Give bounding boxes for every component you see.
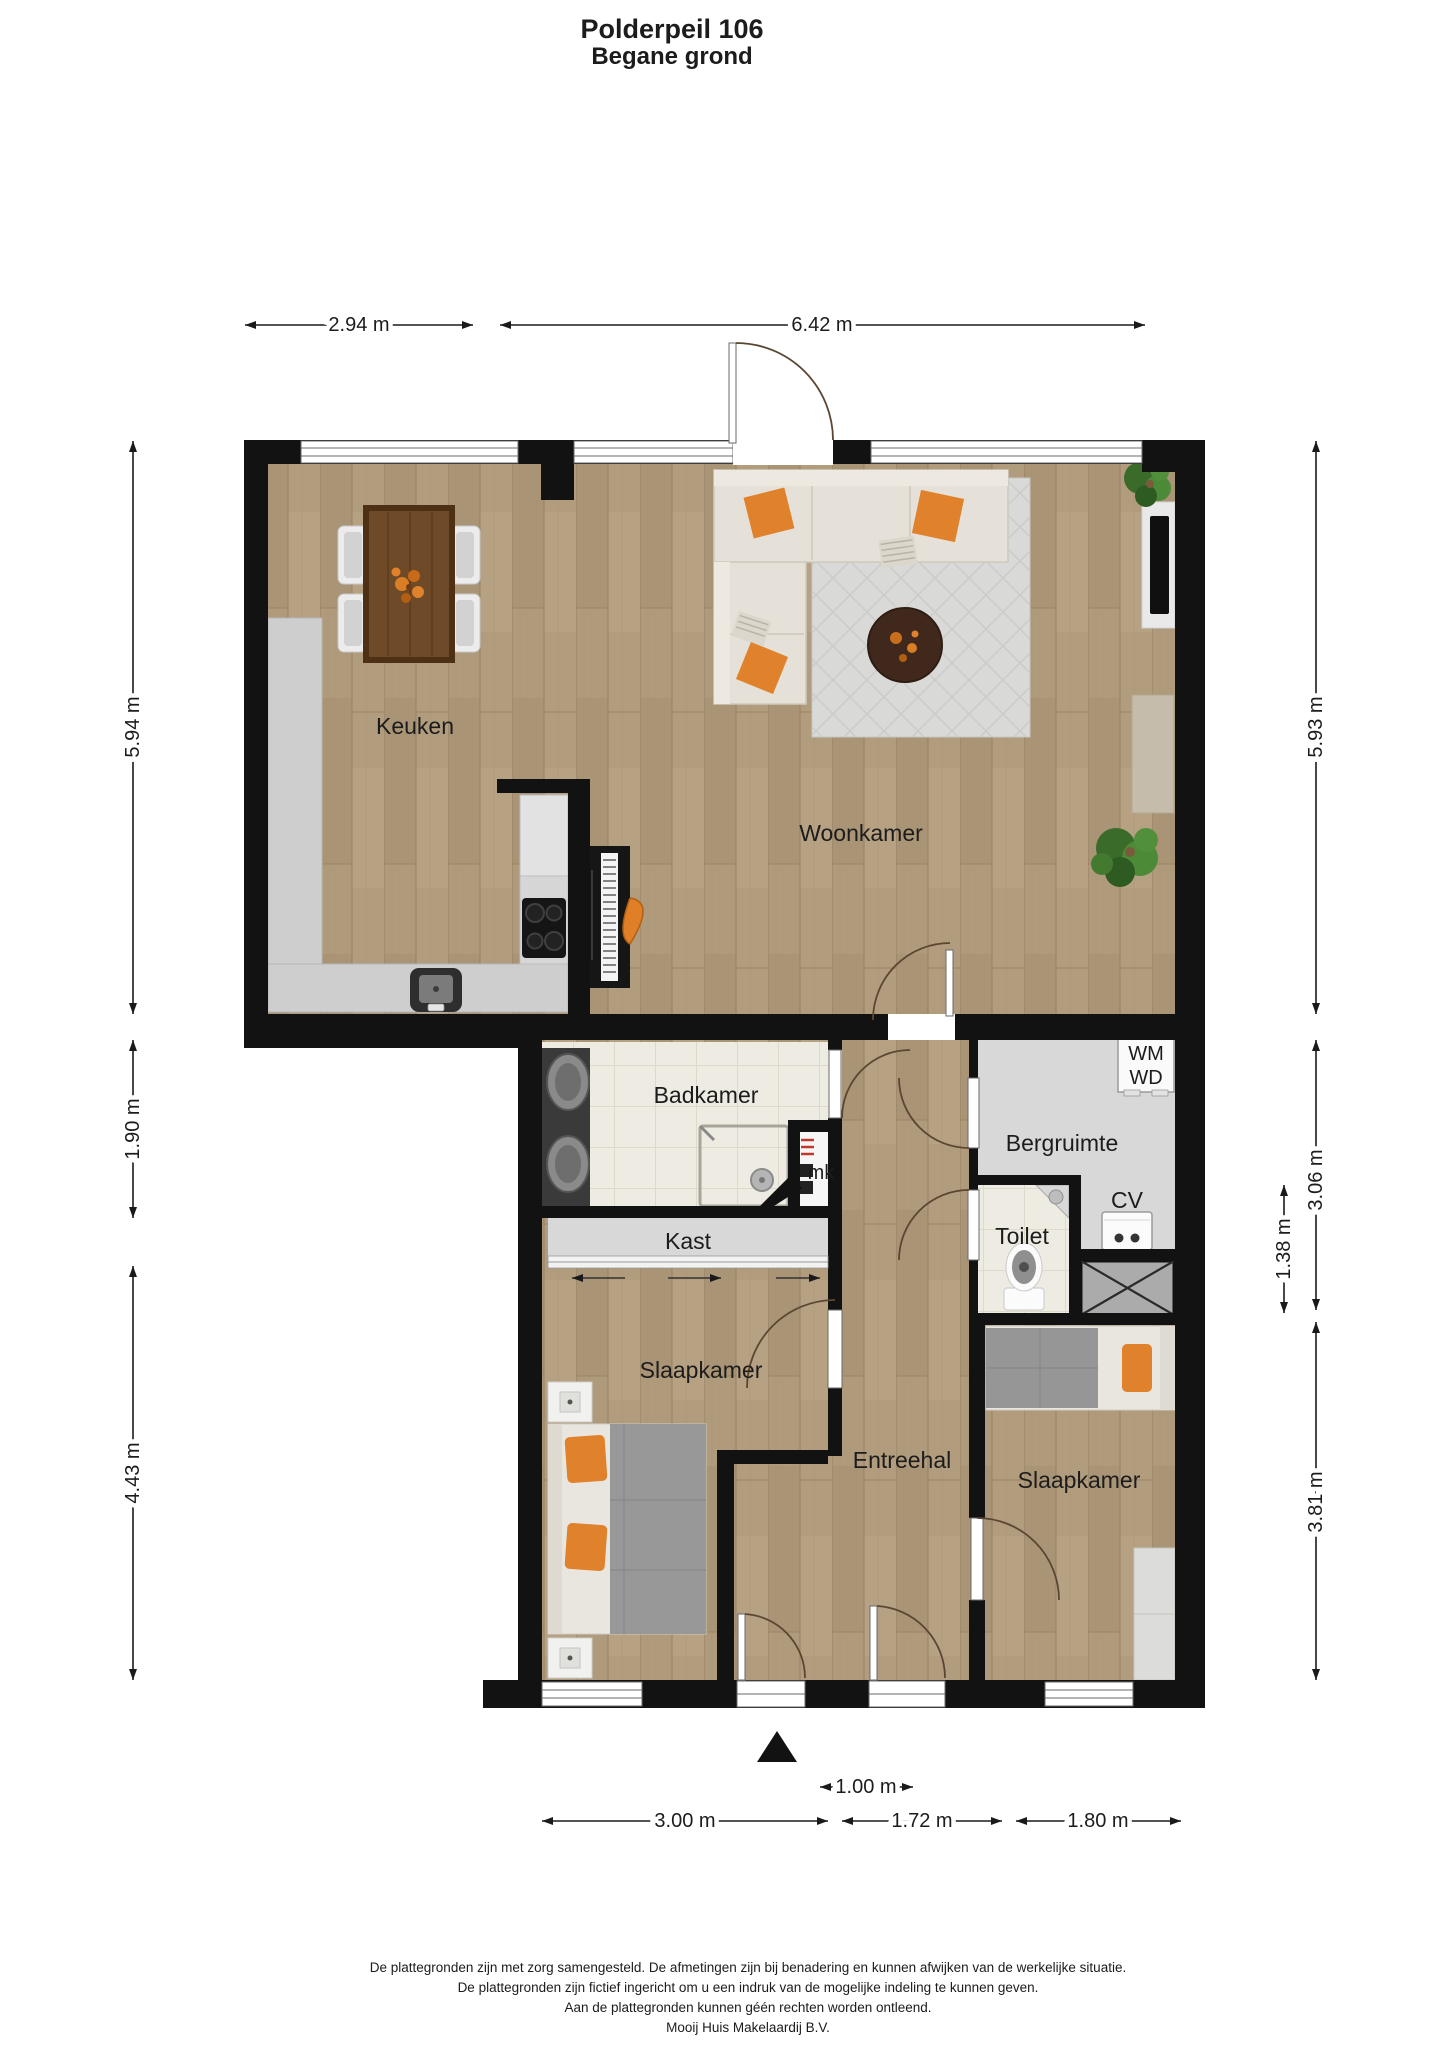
dim-label: 1.80 m	[1067, 1810, 1128, 1832]
dim-label: 5.94 m	[122, 696, 144, 757]
dim-label: 1.00 m	[835, 1776, 896, 1798]
cv-boiler	[1102, 1212, 1152, 1250]
wall-kitchen-nook-v	[568, 779, 590, 1014]
label-toilet: Toilet	[995, 1223, 1049, 1249]
label-bergruimte: Bergruimte	[1006, 1130, 1118, 1156]
dining-table	[338, 508, 480, 660]
footer-line-1: De plattegronden zijn met zorg samengest…	[370, 1960, 1126, 1975]
entrance-arrow-icon	[757, 1731, 797, 1762]
floorplan-canvas: Polderpeil 106 Begane grond	[0, 0, 1448, 2048]
pillow-orange	[1122, 1344, 1152, 1392]
dim-top-1: 2.94 m	[245, 314, 473, 336]
footer-company: Mooij Huis Makelaardij B.V.	[666, 2020, 830, 2035]
wall-bathroom-hall	[828, 1040, 842, 1050]
dim-right-inner: 1.38 m	[1273, 1185, 1295, 1313]
wall-hall-bedroom2	[969, 1600, 985, 1680]
dim-label: 6.42 m	[791, 314, 852, 336]
dim-top-2: 6.42 m	[500, 314, 1145, 336]
wall-kitchen-bottom	[244, 1014, 540, 1048]
wall-toilet-right	[1069, 1185, 1081, 1325]
label-cv: CV	[1111, 1187, 1144, 1213]
dim-label: 1.38 m	[1273, 1218, 1295, 1279]
single-bed	[986, 1326, 1175, 1410]
pillow-orange	[912, 490, 964, 542]
dryer-label: WD	[1129, 1067, 1162, 1089]
label-kast: Kast	[665, 1228, 712, 1254]
wall-shaft-top	[1081, 1249, 1175, 1261]
dim-label: 2.94 m	[328, 314, 389, 336]
label-mk: mk	[808, 1162, 836, 1184]
dim-label: 1.72 m	[891, 1810, 952, 1832]
label-keuken: Keuken	[376, 713, 454, 739]
title-block: Polderpeil 106 Begane grond	[580, 14, 763, 70]
wall-bathroom-bottom	[542, 1206, 842, 1218]
wall-hall-storage	[969, 1040, 978, 1078]
window	[871, 441, 1142, 463]
tv-icon	[1150, 516, 1169, 614]
window	[574, 441, 733, 463]
double-bed	[548, 1424, 706, 1634]
dim-label: 3.06 m	[1305, 1149, 1327, 1210]
dim-label: 3.00 m	[654, 1810, 715, 1832]
tv-unit	[1142, 502, 1175, 628]
dim-label: 4.43 m	[122, 1442, 144, 1503]
wall-storage-toilet	[969, 1175, 1081, 1185]
balcony-door	[729, 343, 833, 465]
dim-right-3: 3.81 m	[1305, 1322, 1327, 1680]
dim-label: 3.81 m	[1305, 1471, 1327, 1532]
wall-hall-bedroom2	[969, 1325, 985, 1518]
dim-bottom-inner: 1.00 m	[820, 1776, 913, 1798]
pillow-striped	[878, 536, 918, 569]
dim-left-1: 5.94 m	[122, 441, 144, 1014]
page-subtitle: Begane grond	[591, 43, 752, 70]
wall-jog-v	[717, 1464, 734, 1680]
footer-line-3: Aan de plattegronden kunnen géén rechten…	[564, 2000, 931, 2015]
washer-label: WM	[1128, 1043, 1164, 1065]
kitchen-sink	[410, 968, 462, 1012]
wall-meter-closet	[788, 1120, 842, 1132]
wall-divider	[540, 1014, 1175, 1040]
dim-bottom-1: 3.00 m	[542, 1810, 828, 1832]
window	[542, 1682, 642, 1706]
wall-jog-h	[717, 1450, 828, 1464]
dim-bottom-2: 1.72 m	[842, 1810, 1002, 1832]
wall-toilet-bottom	[969, 1313, 1175, 1325]
floorplan-page: Polderpeil 106 Begane grond	[0, 0, 1448, 2048]
wall-left	[244, 440, 268, 1048]
nightstand	[548, 1382, 592, 1422]
nightstand	[548, 1638, 592, 1678]
window	[301, 441, 518, 463]
label-entreehal: Entreehal	[853, 1447, 951, 1473]
fridge	[520, 795, 568, 876]
wall-bathroom-hall	[828, 1388, 842, 1456]
coffee-table	[868, 608, 942, 682]
shaft	[1081, 1261, 1174, 1315]
dim-right-2: 3.06 m	[1305, 1040, 1327, 1310]
window	[1045, 1682, 1133, 1706]
dim-right-1: 5.93 m	[1305, 441, 1327, 1014]
dim-label: 5.93 m	[1305, 696, 1327, 757]
wall-right	[1175, 440, 1205, 1708]
label-slaapkamer-1: Slaapkamer	[640, 1357, 763, 1383]
sideboard	[1132, 695, 1174, 813]
dim-label: 1.90 m	[122, 1098, 144, 1159]
label-slaapkamer-2: Slaapkamer	[1018, 1467, 1141, 1493]
bedroom-left-furniture	[548, 1382, 706, 1678]
wall-lower-left	[518, 1040, 542, 1688]
pillow-orange	[564, 1435, 607, 1484]
page-title: Polderpeil 106	[580, 14, 763, 44]
pillow-orange	[564, 1523, 607, 1572]
label-badkamer: Badkamer	[654, 1082, 759, 1108]
counter-left	[268, 618, 322, 1012]
dim-left-3: 4.43 m	[122, 1266, 144, 1680]
dim-left-2: 1.90 m	[122, 1040, 144, 1218]
cooktop	[522, 898, 566, 958]
footer-line-2: De plattegronden zijn fictief ingericht …	[458, 1980, 1039, 1995]
footer-disclaimer: De plattegronden zijn met zorg samengest…	[370, 1960, 1126, 2035]
wall-pier	[541, 464, 574, 500]
label-woonkamer: Woonkamer	[799, 820, 923, 846]
dim-bottom-3: 1.80 m	[1016, 1810, 1181, 1832]
